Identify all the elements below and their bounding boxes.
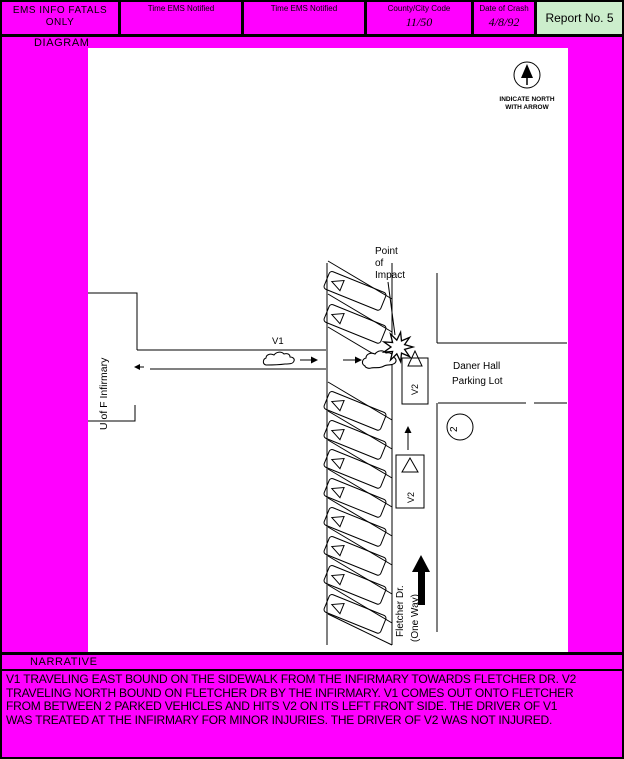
time-ems-cell-1: Time EMS Notified (121, 2, 241, 34)
v2-label-upper: V2 (410, 384, 420, 395)
v2-vehicle-upper: V2 (402, 351, 428, 404)
fletcher-dr-road-edges (327, 263, 567, 645)
north-note-line2: WITH ARROW (505, 104, 549, 111)
fletcher-dr-label: Fletcher Dr. (One Way) (395, 585, 421, 642)
county-city-label: County/City Code (367, 2, 471, 13)
poi-label-line3: Impact (375, 270, 405, 281)
v1-path-arrow-2 (343, 357, 362, 364)
narrative-text: V1 TRAVELING EAST BOUND ON THE SIDEWALK … (6, 673, 619, 727)
daner-hall-label: Daner Hall Parking Lot (452, 361, 503, 387)
time-ems-cell-2: Time EMS Notified (244, 2, 364, 34)
county-city-cell: County/City Code 11/50 (367, 2, 471, 34)
time-ems-label-2: Time EMS Notified (244, 2, 364, 13)
v2-label-lower: V2 (406, 492, 416, 503)
header-underline (2, 34, 622, 37)
narrative-section-label: NARRATIVE (30, 656, 98, 668)
crash-diagram: INDICATE NORTH WITH ARROW U of F Infirma… (88, 48, 568, 654)
v2-vehicle-lower: V2 (396, 455, 424, 508)
crash-report-page: EMS INFO FATALS ONLY Time EMS Notified T… (0, 0, 624, 759)
county-city-value: 11/50 (367, 15, 471, 30)
v1-label: V1 (272, 336, 284, 347)
parked-vehicles (323, 271, 387, 634)
date-of-crash-value: 4/8/92 (474, 15, 534, 30)
daner-label-line1: Daner Hall (453, 361, 500, 372)
narrative-top-line (2, 652, 622, 655)
infirmary-building: U of F Infirmary (88, 293, 144, 430)
diagram-section-label: DIAGRAM (34, 37, 90, 49)
date-of-crash-label: Date of Crash (474, 2, 534, 13)
narrative-underline (2, 669, 622, 671)
report-number-badge: Report No. 5 (537, 2, 622, 34)
narrative-line-3: FROM BETWEEN 2 PARKED VEHICLES AND HITS … (6, 700, 619, 714)
building-label: U of F Infirmary (98, 357, 110, 430)
header-row: EMS INFO FATALS ONLY Time EMS Notified T… (2, 2, 622, 34)
diagram-canvas: INDICATE NORTH WITH ARROW U of F Infirma… (88, 48, 568, 654)
poi-label-line1: Point (375, 246, 398, 257)
building-door-arrow (134, 364, 140, 370)
v1-path-arrow-1 (300, 357, 318, 364)
v2-direction-triangle (402, 458, 418, 472)
street-name-label: Fletcher Dr. (395, 585, 406, 637)
circled-2-glyph: 2 (449, 426, 460, 432)
circled-2-symbol: 2 (447, 414, 473, 440)
time-ems-label-1: Time EMS Notified (121, 2, 241, 13)
narrative-line-1: V1 TRAVELING EAST BOUND ON THE SIDEWALK … (6, 673, 619, 687)
daner-label-line2: Parking Lot (452, 376, 503, 387)
sidewalk (137, 350, 326, 369)
narrative-line-4: WAS TREATED AT THE INFIRMARY FOR MINOR I… (6, 714, 619, 728)
north-indicator-icon: INDICATE NORTH WITH ARROW (499, 62, 554, 111)
poi-label-line2: of (375, 258, 384, 269)
v2-path-arrow (405, 426, 412, 450)
ems-info-cell: EMS INFO FATALS ONLY (2, 2, 118, 34)
narrative-line-2: TRAVELING NORTH BOUND ON FLETCHER DR BY … (6, 687, 619, 701)
date-of-crash-cell: Date of Crash 4/8/92 (474, 2, 534, 34)
north-note-line1: INDICATE NORTH (499, 96, 554, 103)
